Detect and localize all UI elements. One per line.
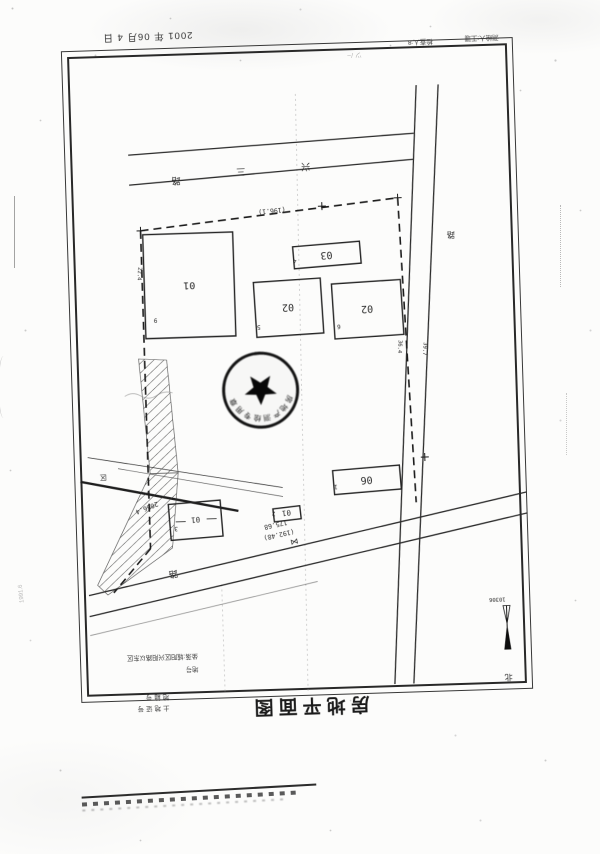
point-number: 3 <box>174 525 178 532</box>
north-arrow-icon <box>503 605 511 649</box>
point-number: 2 <box>271 510 275 517</box>
site-plan-drawing: 01 03 02 02 06 01 01 9 5 6 4 1 2 3 (196.… <box>61 37 533 703</box>
date-stamp: 2001 年 06月 4 日 <box>68 28 192 43</box>
dimension-north-boundary: (196.1) <box>258 205 286 216</box>
road-name-char: 兴 <box>301 161 310 171</box>
pencil-note: 1991.6 <box>12 533 25 603</box>
next-page-edge-artifact <box>82 783 318 818</box>
corner-label-1: 地籍号 <box>109 693 169 705</box>
building-label: 02 <box>361 302 374 314</box>
road-width-dim: 39.7 <box>421 342 428 356</box>
dimension-frontage: 175.68 <box>263 518 288 531</box>
building-label: 01 <box>191 515 201 525</box>
building-label: 01 <box>183 279 195 290</box>
gate-symbol: ⋈ <box>289 536 299 547</box>
road-name-char: 路 <box>447 230 455 240</box>
building-label: 01 <box>281 508 291 518</box>
margin-mark <box>14 196 15 268</box>
road-width-dim: 36.4 <box>396 340 403 354</box>
sheet-number: 10306 <box>489 596 506 603</box>
road-name-char: 路 <box>168 568 179 581</box>
point-number: 1 <box>334 483 338 490</box>
margin-dotted-line <box>566 393 567 455</box>
road-name-char: 三 <box>236 167 245 177</box>
corner-label-2: 土地证号 <box>95 704 169 716</box>
point-number: 9 <box>153 316 157 323</box>
area-char: 区 <box>100 473 107 481</box>
point-number: 4 <box>292 257 296 264</box>
margin-dotted-line <box>560 205 561 287</box>
boundary-wall-lines <box>80 452 284 516</box>
margin-curve-mark <box>0 356 9 418</box>
road-name-char: 路 <box>171 176 180 187</box>
boundary-point-marks <box>136 193 429 470</box>
official-seal-stamp: 房地产测绘专用章 <box>222 352 298 428</box>
building-label: 02 <box>282 301 295 313</box>
point-number: 6 <box>337 323 341 330</box>
north-label: 北 <box>505 672 513 681</box>
building-label: 06 <box>360 473 373 485</box>
page-title: 房地平面图 <box>249 692 370 723</box>
point-number: 5 <box>257 323 261 330</box>
legend-parcel-row: 地号 <box>176 665 198 675</box>
dimension-side: 22.4 <box>136 267 143 281</box>
building-label: 03 <box>320 249 333 261</box>
scanned-sheet: 1991.6 ツ /~ 2001 年 06月 4 日 检查人:8 测绘人:王珊 <box>0 0 600 854</box>
scan-noise <box>0 0 1 1</box>
map-frame: 2001 年 06月 4 日 检查人:8 测绘人:王珊 <box>61 37 533 703</box>
